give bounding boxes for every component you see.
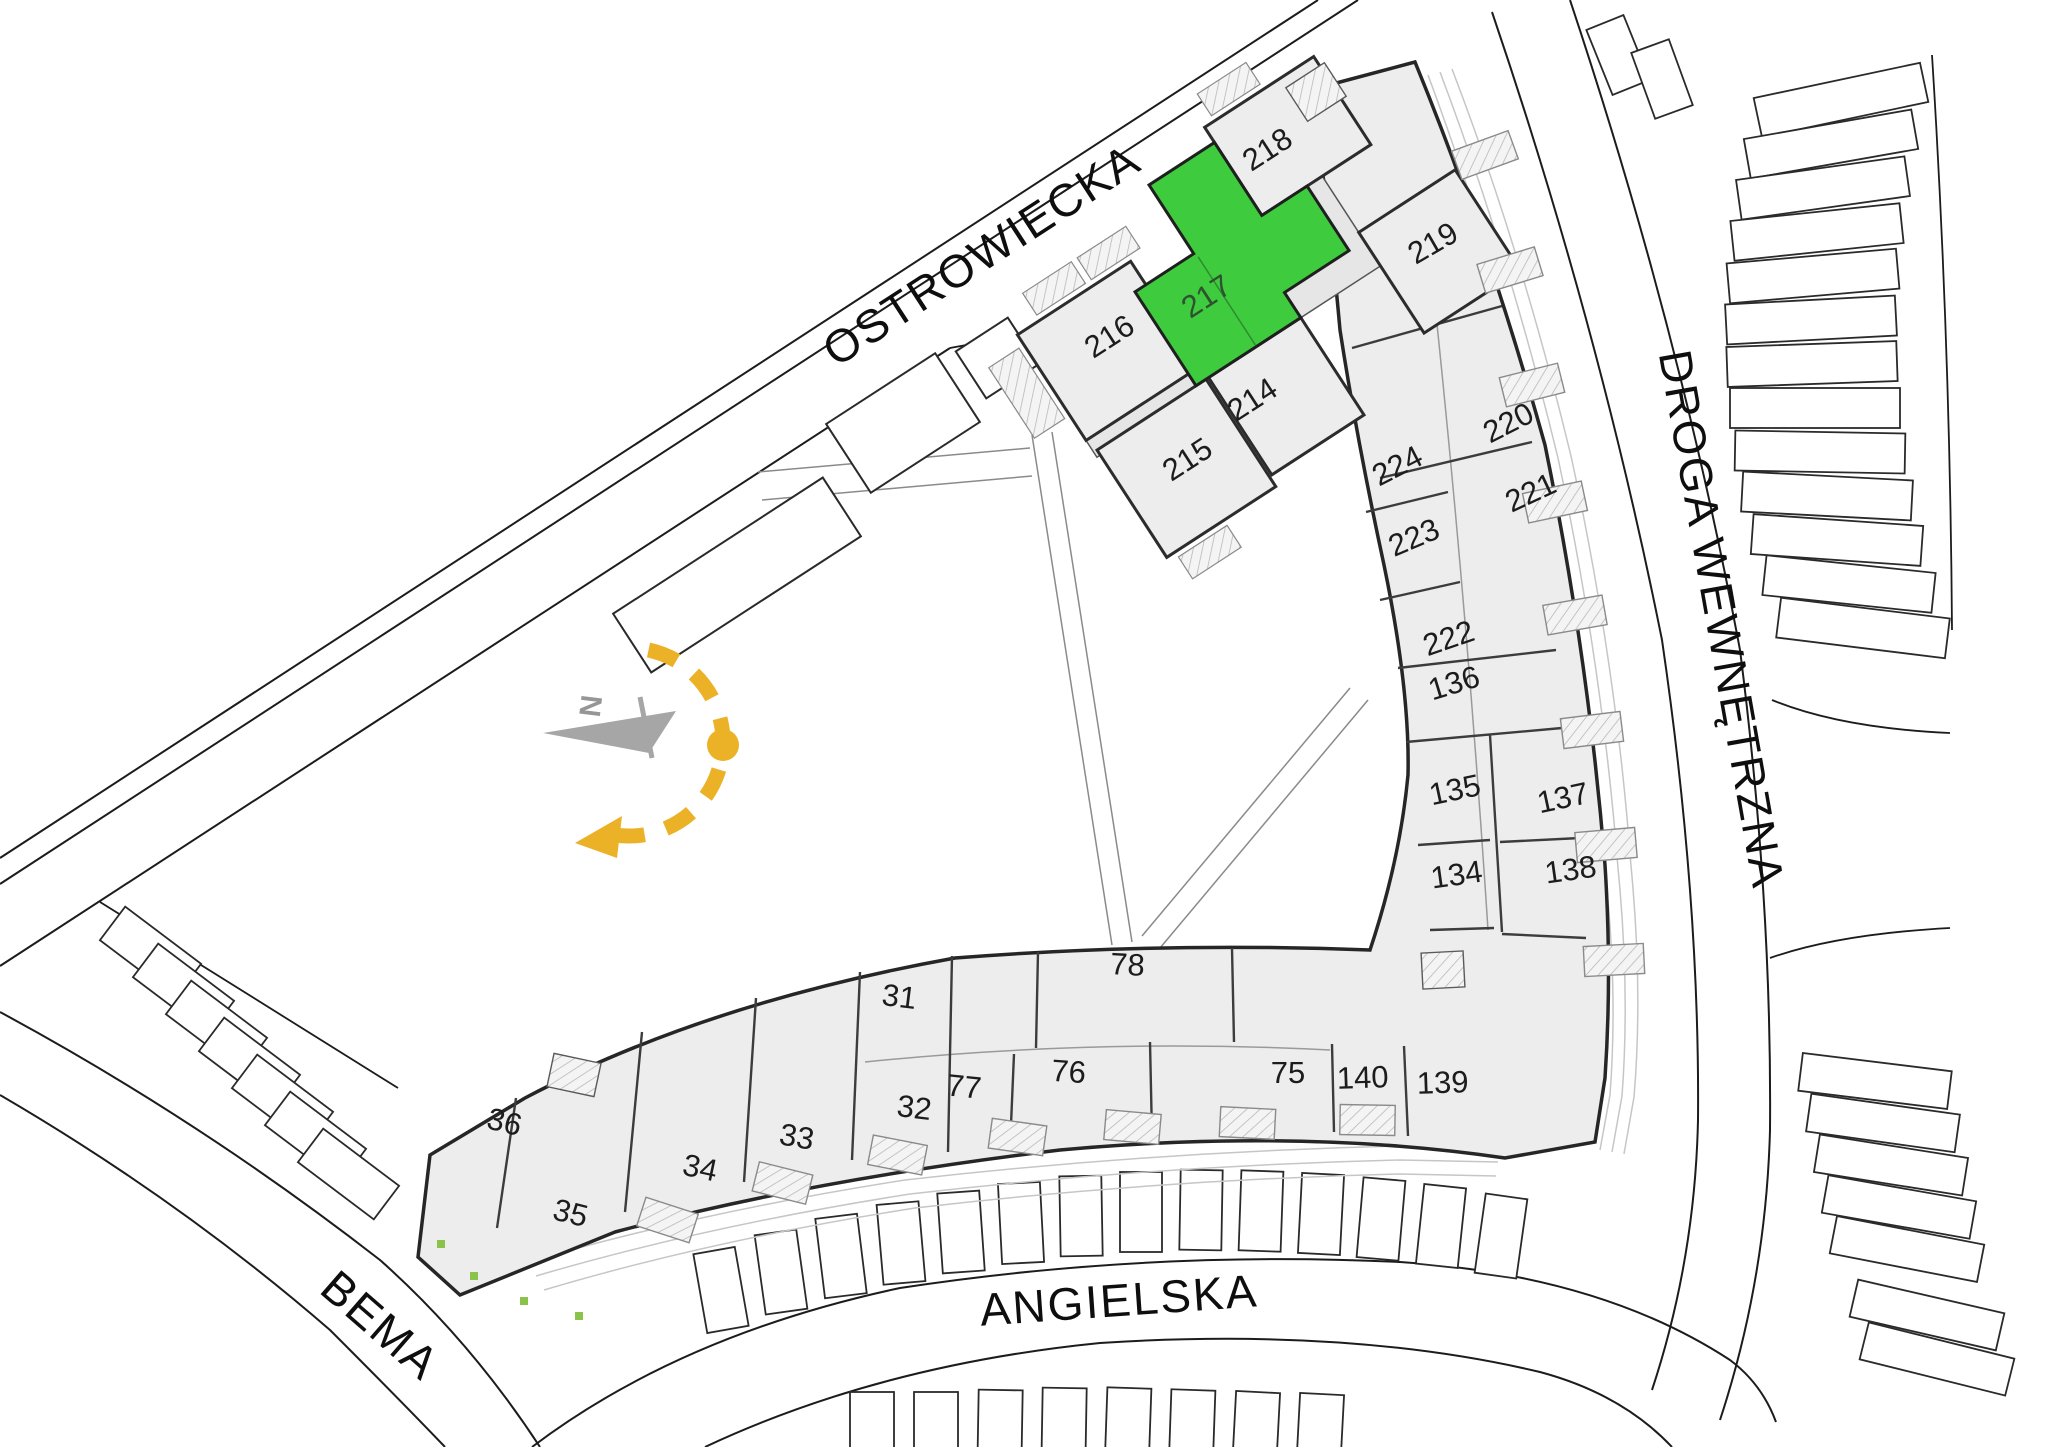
parking-stall [998, 1182, 1044, 1264]
parking-stall [1169, 1389, 1216, 1447]
parking-stall [977, 1390, 1022, 1447]
unit-label-31[interactable]: 31 [880, 977, 918, 1016]
parking-stall [1059, 1176, 1102, 1257]
courtyard-paths [758, 432, 1368, 948]
stairwell [1421, 951, 1465, 989]
parking-stall [755, 1229, 808, 1314]
parking-stall [914, 1392, 958, 1447]
road-bema-inner-line [0, 1095, 445, 1447]
parking-stall [1105, 1387, 1152, 1447]
unit-label-34[interactable]: 34 [680, 1147, 721, 1188]
balcony [1104, 1110, 1161, 1145]
site-plan-canvas: OSTROWIECKADROGA WEWNĘTRZNAANGIELSKABEMA… [0, 0, 2048, 1447]
unit-label-76[interactable]: 76 [1050, 1053, 1087, 1090]
unit-label-33[interactable]: 33 [777, 1116, 817, 1156]
road-ostrowiecka-inner-line [0, 348, 950, 966]
unit-label-78[interactable]: 78 [1109, 946, 1145, 983]
parking-stall [1726, 341, 1897, 387]
parking-stall [1232, 1391, 1280, 1447]
parking-edge-line [1932, 55, 1952, 630]
parking-stall [1631, 39, 1693, 118]
balcony [1560, 711, 1623, 748]
compass: N [543, 650, 739, 858]
unit-label-140[interactable]: 140 [1336, 1059, 1389, 1096]
site-enclosures [613, 318, 1038, 673]
parking-stall [1296, 1393, 1344, 1447]
balcony [1452, 131, 1519, 180]
parking-stall [1725, 296, 1897, 345]
parking-stall [1041, 1388, 1086, 1447]
unit-label-32[interactable]: 32 [895, 1088, 933, 1127]
unit-label-77[interactable]: 77 [945, 1067, 983, 1105]
parking-stall [877, 1201, 926, 1284]
parking-stall [850, 1392, 894, 1447]
parking-stall [1120, 1172, 1162, 1252]
parking-stall [1730, 388, 1900, 428]
entrance-dot [575, 1312, 583, 1320]
street-label-bema: BEMA [311, 1260, 450, 1390]
street-label-angielska: ANGIELSKA [978, 1264, 1260, 1335]
parking-stall [1416, 1184, 1466, 1268]
driveway-line-upper [1772, 700, 1950, 733]
north-label: N [574, 693, 609, 719]
parking-stall [1357, 1177, 1406, 1260]
parking-stall [693, 1247, 748, 1333]
parking-stall [1298, 1173, 1344, 1255]
unit-label-138[interactable]: 138 [1542, 849, 1598, 891]
balcony [1583, 943, 1644, 976]
entrance-dot [437, 1240, 445, 1248]
sun-path-arrowhead-icon [575, 816, 622, 858]
entrance-dot [470, 1272, 478, 1280]
balcony [1219, 1107, 1275, 1140]
parking-stall [1475, 1193, 1528, 1278]
parking-stall [1735, 431, 1906, 474]
unit-label-134[interactable]: 134 [1428, 854, 1484, 896]
north-arrow-icon [543, 711, 676, 753]
driveway-line-lower [1770, 928, 1950, 958]
sun-icon [707, 729, 739, 761]
enclosure-box-1 [826, 353, 980, 493]
parking-stall [1741, 472, 1913, 521]
entrance-dot [520, 1297, 528, 1305]
site-plan: OSTROWIECKADROGA WEWNĘTRZNAANGIELSKABEMA… [0, 0, 2048, 1447]
parking-stall [815, 1214, 866, 1299]
unit-label-75[interactable]: 75 [1271, 1055, 1305, 1090]
balcony [1340, 1105, 1396, 1136]
parking-stall [1239, 1170, 1284, 1251]
unit-label-139[interactable]: 139 [1416, 1064, 1469, 1101]
